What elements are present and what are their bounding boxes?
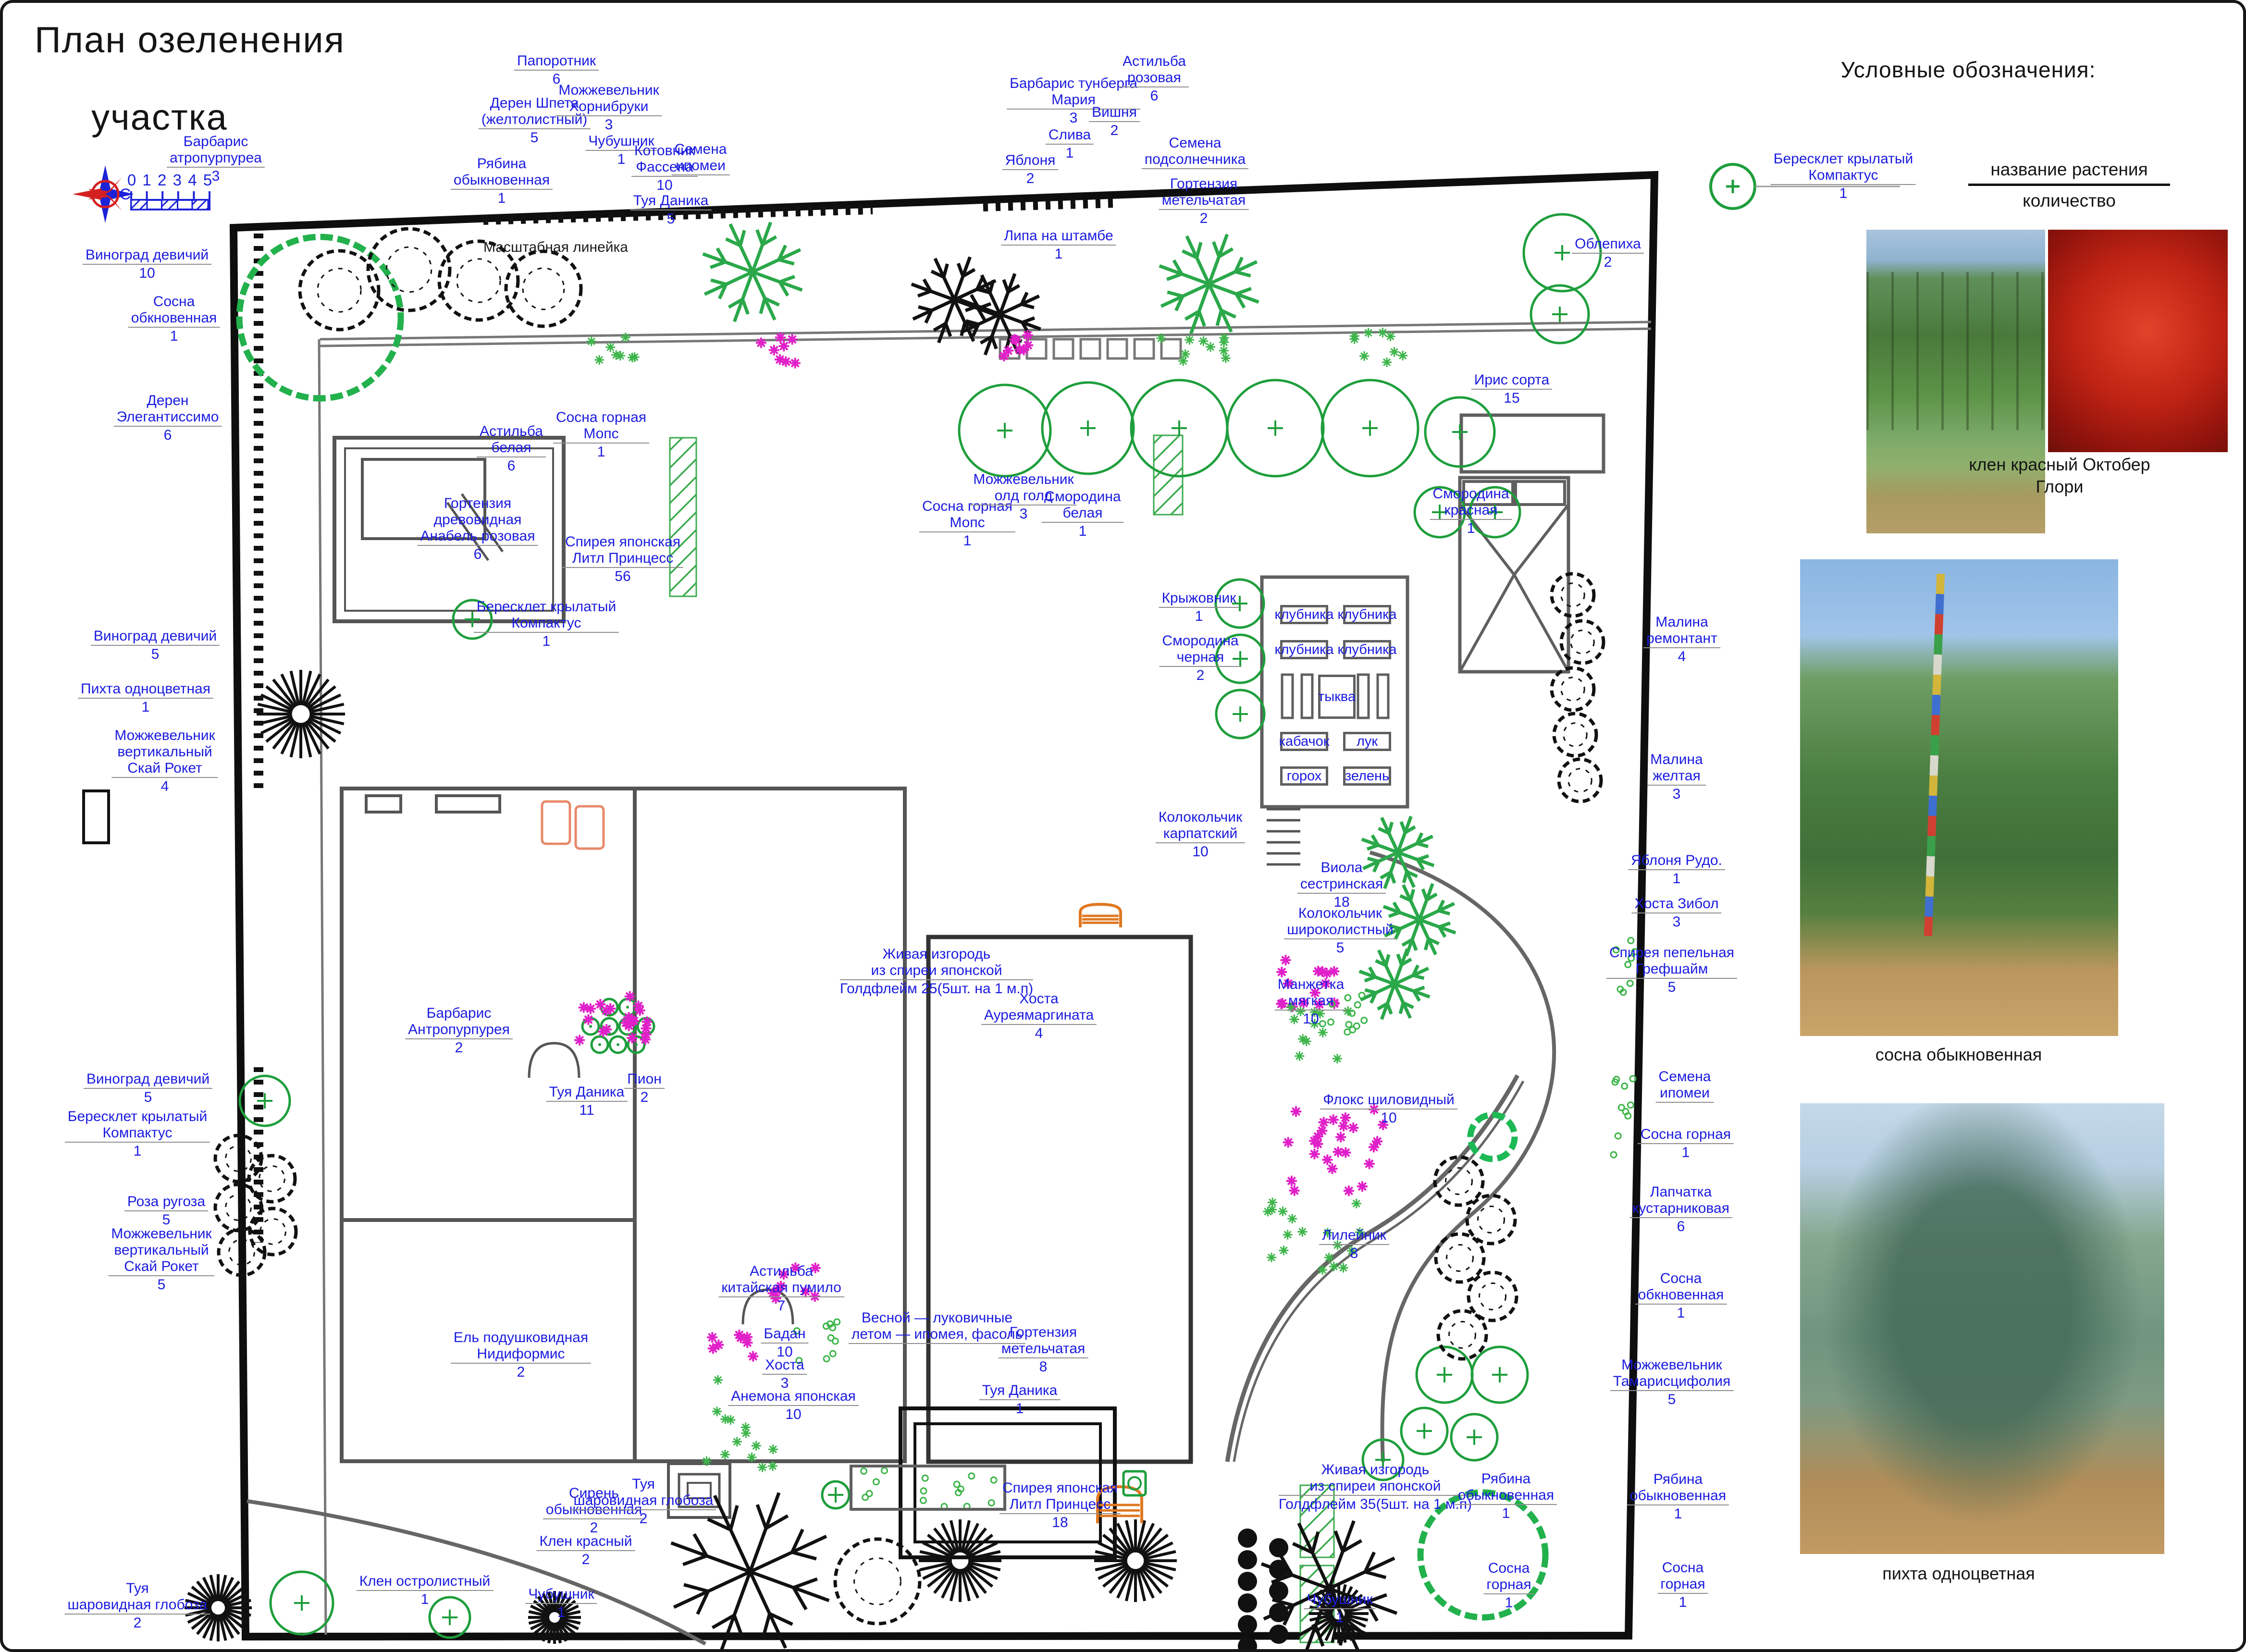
scale-ruler-note: Масштабная линейка — [483, 239, 628, 256]
scale-tick: 1 — [142, 171, 151, 189]
landscaping-plan-sheet: План озеленения участка С 012345 Масштаб… — [0, 0, 2246, 1652]
photo-caption-maple: клен красный Октобер Глори — [1944, 454, 2175, 498]
legend-caption: название растения количество — [1968, 160, 2170, 211]
page-title: План озеленения участка — [35, 19, 284, 138]
legend-header: Условные обозначения: — [1795, 57, 2141, 83]
scale-bar — [131, 191, 210, 210]
scale-tick: 0 — [127, 171, 136, 189]
striped-pole — [1924, 574, 1945, 936]
photo-scots-pine — [1800, 559, 2118, 1036]
photo-caption-pine: сосна обыкновенная — [1843, 1044, 2074, 1066]
photo-red-maple-leaves — [2048, 230, 2228, 452]
scale-tick: 5 — [203, 171, 212, 189]
photo-white-fir — [1800, 1103, 2164, 1554]
legend-sample-label: Бересклет крылатый Компактус 1 — [1771, 151, 1916, 202]
scale-tick: 3 — [173, 171, 182, 189]
legend-caption-count: количество — [1968, 191, 2170, 211]
photo-caption-fir: пихта одноцветная — [1843, 1563, 2074, 1585]
page-title-line1: План озеленения — [35, 19, 284, 61]
legend-sample-name2: Компактус — [1771, 167, 1916, 185]
page-title-line2: участка — [35, 97, 284, 138]
scale-tick: 4 — [188, 171, 197, 189]
scale-tick: 2 — [158, 171, 166, 189]
legend-caption-name: название растения — [1968, 160, 2170, 186]
legend-sample-count: 1 — [1771, 185, 1916, 202]
legend-sample-name1: Бересклет крылатый — [1771, 151, 1916, 167]
